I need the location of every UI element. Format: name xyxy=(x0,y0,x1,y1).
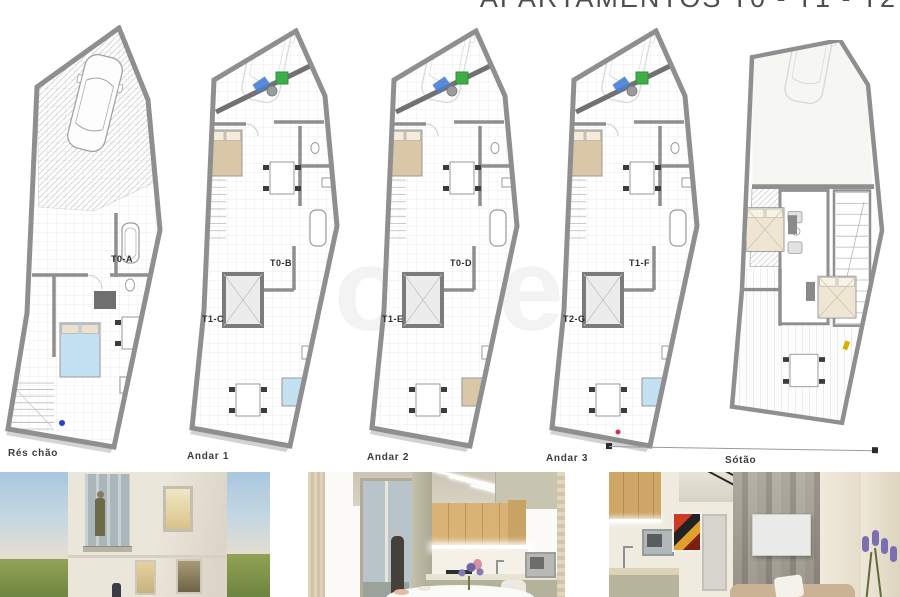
tv-screen xyxy=(752,514,811,556)
lavender-flower xyxy=(862,536,869,552)
page-title: APARTAMENTOS T0 - T1 - T2 xyxy=(480,0,897,14)
window-upper xyxy=(163,486,193,532)
section-marker-right xyxy=(872,447,878,453)
unit-label-t1-f: T1-F xyxy=(629,258,650,268)
glass-balcony xyxy=(85,474,130,548)
floor-plan-andar-3 xyxy=(542,28,712,452)
base-cabinets xyxy=(609,575,679,597)
sofa-cushion xyxy=(774,574,805,597)
microwave-window xyxy=(647,534,662,547)
microwave-window xyxy=(530,557,544,569)
floor-label-andar-1: Andar 1 xyxy=(187,451,229,462)
floor-plan-andar-1 xyxy=(182,28,352,452)
microwave xyxy=(642,529,674,556)
wood-upper-cabinets xyxy=(432,503,508,545)
unit-label-t1-c: T1-C xyxy=(202,314,224,324)
balcony-door xyxy=(360,478,418,597)
floor-plan-sotao xyxy=(722,40,894,440)
floor-label-sotao: Sótão xyxy=(725,455,756,466)
wood-cabinet-side xyxy=(508,500,526,548)
faucet-spout xyxy=(623,546,633,548)
unit-label-t1-e: T1-E xyxy=(382,314,404,324)
unit-label-t2-g: T2-G xyxy=(563,314,586,324)
person-silhouette xyxy=(391,536,404,594)
door-mullion xyxy=(385,481,388,594)
grass-left xyxy=(0,559,68,597)
drawing-sheet: APARTAMENTOS T0 - T1 - T2 zone T0-A T0-B… xyxy=(0,0,900,597)
living-room-render-photo xyxy=(609,472,900,597)
balcony-rail xyxy=(83,546,132,552)
lavender-flower xyxy=(881,538,888,554)
floor-plan-res-chao xyxy=(2,25,172,453)
wall-right xyxy=(820,472,865,597)
facade-render-photo xyxy=(0,472,270,597)
textured-wall-left xyxy=(308,472,325,597)
lavender-flower xyxy=(872,530,879,546)
textured-wall-right xyxy=(557,472,565,597)
floor-divider xyxy=(68,555,227,558)
person-silhouette xyxy=(95,498,105,536)
unit-label-t0-a: T0-A xyxy=(111,254,133,264)
floor-label-res-chao: Rés chão xyxy=(8,448,58,459)
unit-label-t0-d: T0-D xyxy=(450,258,472,268)
window-lower-right xyxy=(176,559,202,594)
wall-artwork xyxy=(672,512,702,552)
floor-label-andar-3: Andar 3 xyxy=(546,453,588,464)
plate xyxy=(394,589,409,595)
under-cabinet-light xyxy=(609,519,661,522)
unit-label-t0-b: T0-B xyxy=(270,258,292,268)
person-head xyxy=(97,491,104,498)
person-silhouette-small xyxy=(112,583,121,597)
faucet xyxy=(623,546,625,568)
countertop xyxy=(609,568,679,575)
lavender-flowers xyxy=(456,562,486,580)
plate xyxy=(418,586,431,591)
interior-door xyxy=(702,514,727,591)
faucet xyxy=(496,560,498,574)
section-line-rule xyxy=(609,446,875,451)
grass-right xyxy=(227,554,270,597)
faucet-spout xyxy=(496,560,504,562)
microwave xyxy=(525,552,556,578)
kitchen-render-photo xyxy=(308,472,565,597)
wood-upper-cabinet xyxy=(609,472,661,519)
window-lower-left xyxy=(135,560,156,595)
lavender-flower xyxy=(890,546,897,562)
floor-label-andar-2: Andar 2 xyxy=(367,452,409,463)
floor-plan-andar-2 xyxy=(362,28,532,452)
building-facade xyxy=(68,472,227,597)
section-line xyxy=(606,443,878,454)
